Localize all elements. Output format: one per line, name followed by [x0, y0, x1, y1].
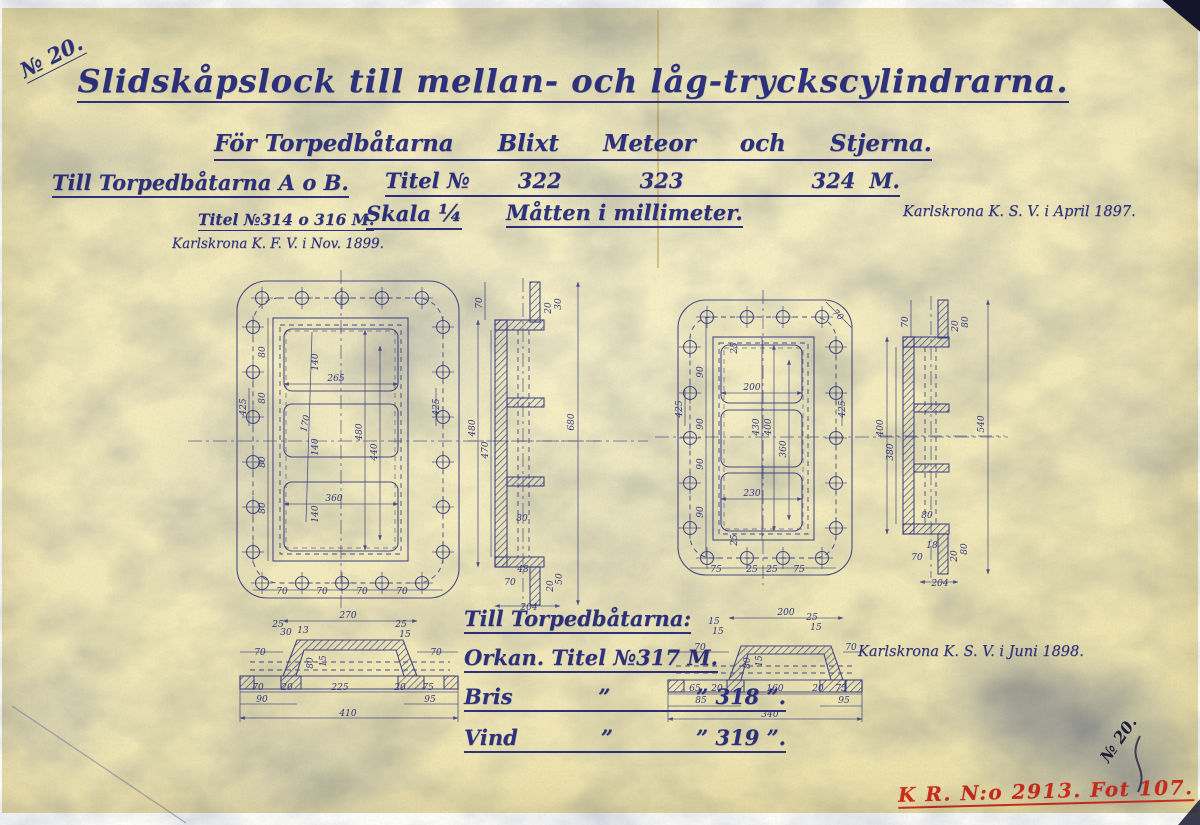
- dimension-label: 90: [696, 366, 706, 378]
- titel-319: ” 319 ”.: [696, 725, 786, 750]
- drawing-title: Slidskåpslock till mellan- och låg-tryck…: [77, 62, 1068, 103]
- dimension-label: 680: [567, 413, 577, 430]
- dimension-label: 30: [554, 298, 564, 310]
- titel-323: 323: [640, 168, 684, 193]
- dimension-label: 425: [239, 398, 249, 416]
- dimension-label: 440: [370, 443, 380, 461]
- dimension-label: 70: [475, 297, 485, 309]
- dimension-label: 140: [311, 505, 321, 522]
- boat-name-vind: Vind: [464, 725, 518, 750]
- dimension-label: 90: [696, 506, 706, 518]
- dimension-label: 20: [393, 683, 406, 693]
- dimension-label: 20: [811, 684, 824, 694]
- dimension-label: 480: [355, 423, 365, 441]
- dimension-label: 140: [311, 438, 321, 455]
- dimension-label: 25: [730, 342, 740, 355]
- karlskrona-1897-note: Karlskrona K. S. V. i April 1897.: [903, 204, 1136, 220]
- titel-324: 324: [811, 168, 855, 193]
- view-left-section: 7020304804706808048702050204: [468, 278, 600, 613]
- dimension-label: 70: [845, 643, 857, 653]
- dimension-label: 265: [326, 374, 344, 384]
- scale-label: Skala: [366, 201, 431, 226]
- drawing-subtitle: För Torpedbåtarna Blixt Meteor och Stjer…: [214, 130, 932, 161]
- dimension-label: 75: [710, 565, 722, 575]
- dimension-label: 90: [696, 458, 706, 470]
- dimension-label: 75: [793, 565, 805, 575]
- units-note: Måtten i millimeter.: [506, 200, 743, 228]
- titel-322: 322: [518, 168, 562, 193]
- dimension-label: 360: [779, 440, 789, 457]
- dimension-label: 70: [911, 553, 923, 563]
- dimension-label: 400: [764, 418, 774, 436]
- dimension-label: 425: [838, 400, 848, 418]
- dimension-label: 225: [330, 683, 348, 693]
- dimension-label: 80: [960, 543, 970, 555]
- dimension-label: 480: [468, 419, 478, 437]
- dimension-label: 25: [745, 565, 758, 575]
- titel-318: ” 318 ”.: [696, 684, 786, 709]
- view-left-plan: 2653601401401404804401708080808042542570…: [188, 270, 648, 608]
- boat-name-blixt: Blixt: [498, 130, 559, 157]
- dimension-label: 204: [930, 579, 948, 589]
- dimension-label: 270: [338, 611, 356, 621]
- karlskrona-1898-note: Karlskrona K. S. V. i Juni 1898.: [858, 644, 1084, 660]
- dimension-label: 75: [422, 683, 434, 693]
- dimension-label: 70: [252, 683, 264, 693]
- dimension-labels: 2653601401401404804401708080808042542570…: [239, 346, 442, 597]
- titel-numbers-row: Titel № 322 323 324 M.: [385, 168, 900, 197]
- dimension-label: 75: [835, 684, 847, 694]
- dimension-label: 70: [504, 578, 516, 588]
- titel-m: M.: [869, 168, 900, 193]
- subtitle-och: och: [740, 130, 786, 157]
- dimension-label: 15: [399, 630, 411, 640]
- dimension-label: 80: [258, 392, 268, 404]
- dimension-label: 18: [926, 541, 938, 551]
- dimension-label: 90: [696, 418, 706, 430]
- footer-bris-row: Bris ” ” 318 ”.: [464, 684, 786, 712]
- dimension-label: 140: [311, 353, 321, 370]
- scanned-drawing-page: 2653601401401404804401708080808042542570…: [0, 0, 1200, 825]
- dimension-label: 70: [396, 587, 408, 597]
- dimension-label: 48: [516, 565, 529, 575]
- dimension-label: 80: [516, 514, 528, 524]
- scale-note: Skala ¼: [366, 200, 462, 230]
- view-right-section: 7020804003805408018702080204: [876, 296, 1005, 589]
- dimension-label: 20: [544, 302, 554, 315]
- ditto-mark: ”: [598, 684, 610, 709]
- ditto-mark: ”: [601, 725, 613, 750]
- dimension-label: 70: [901, 316, 911, 328]
- dimension-label: 25: [805, 613, 818, 623]
- titel-314-316: Titel №314 o 316 M.: [198, 210, 374, 231]
- dimension-label: 360: [325, 494, 342, 504]
- dimension-label: 30: [280, 628, 292, 638]
- dimension-label: 70: [276, 587, 288, 597]
- dimension-label: 470: [481, 441, 491, 459]
- dimension-label: 230: [742, 489, 760, 499]
- dimension-label: 15: [319, 655, 329, 667]
- dimension-label: 425: [675, 400, 685, 418]
- dimension-label: 90: [256, 695, 268, 705]
- dimension-label: 13: [297, 626, 309, 636]
- subtitle-for: För Torpedbåtarna: [214, 130, 454, 157]
- dimension-label: 70: [254, 648, 266, 658]
- dimension-label: 95: [838, 696, 850, 706]
- dimension-labels: 7020804003805408018702080204: [876, 316, 987, 589]
- boat-name-meteor: Meteor: [603, 130, 696, 157]
- dimension-label: 80: [306, 657, 316, 669]
- titel-label: Titel №: [385, 168, 470, 193]
- dimension-label: 80: [961, 316, 971, 328]
- subtitle-row: För Torpedbåtarna Blixt Meteor och Stjer…: [0, 130, 1146, 161]
- dimension-label: 20: [950, 550, 960, 563]
- boat-name-stjerna: Stjerna.: [830, 130, 932, 157]
- dimension-label: 80: [258, 502, 268, 514]
- karlskrona-1899-note: Karlskrona K. F. V. i Nov. 1899.: [172, 236, 384, 252]
- dimension-label: 425: [432, 398, 442, 416]
- view-bottom-left-section: 270253013251570708015702022520759095410: [240, 611, 458, 722]
- dimension-label: 95: [424, 695, 436, 705]
- dimension-label: 80: [258, 456, 268, 468]
- footer-till: Till Torpedbåtarna:: [464, 606, 691, 634]
- dimension-label: 400: [876, 419, 886, 437]
- dimension-label: 25: [765, 565, 778, 575]
- dimension-label: 80: [258, 346, 268, 358]
- dimension-label: 80: [921, 511, 933, 521]
- dimension-label: 15: [810, 623, 822, 633]
- dimension-label: 380: [886, 443, 896, 460]
- footer-vind-row: Vind ” ” 319 ”.: [464, 725, 786, 753]
- title-row: Slidskåpslock till mellan- och låg-tryck…: [0, 62, 1146, 100]
- dimension-label: 70: [316, 587, 328, 597]
- scale-value: ¼: [438, 200, 462, 227]
- dimension-label: 200: [742, 383, 760, 393]
- dimension-label: 70: [430, 648, 442, 658]
- dimension-label: 50: [555, 573, 565, 585]
- view-right-plan: 2002304304003609090909025254254257075252…: [655, 290, 1008, 585]
- boats-a-b-note: Till Torpedbåtarna A o B.: [52, 170, 349, 198]
- dimension-labels: 270253013251570708015702022520759095410: [252, 611, 442, 719]
- dimension-label: 430: [752, 418, 762, 436]
- dimension-label: 70: [356, 587, 368, 597]
- dimension-label: 70: [830, 308, 845, 323]
- dimension-label: 410: [338, 709, 356, 719]
- dimension-label: 20: [951, 320, 961, 333]
- dimension-label: 25: [394, 620, 407, 630]
- dimension-label: 170: [299, 414, 312, 433]
- dimension-label: 540: [977, 415, 987, 432]
- footer-boat-list: Till Torpedbåtarna: Orkan. Titel №317 M.…: [464, 606, 796, 766]
- dimension-labels: 7020304804706808048702050204: [468, 297, 577, 613]
- boat-name-bris: Bris: [464, 684, 513, 709]
- dimension-label: 25: [730, 534, 740, 547]
- footer-orkan: Orkan. Titel №317 M.: [464, 645, 718, 673]
- dimension-label: 20: [280, 683, 293, 693]
